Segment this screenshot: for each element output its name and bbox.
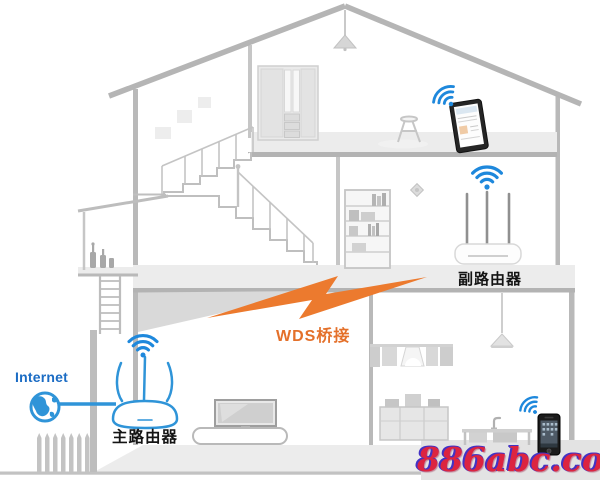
wds-bridge-label: WDS桥接 xyxy=(276,322,350,346)
secondary-router-wifi-icon xyxy=(473,167,502,190)
kitchen-sideboard xyxy=(380,394,448,440)
house-illustration xyxy=(0,0,600,481)
balcony xyxy=(78,196,168,270)
internet-label: Internet xyxy=(15,369,68,385)
kitchen-cabinets-upper xyxy=(370,344,453,367)
tv xyxy=(215,400,276,429)
fence xyxy=(37,433,90,472)
main-router-label: 主路由器 xyxy=(112,425,178,447)
second-floor-wall xyxy=(336,157,340,267)
wardrobe xyxy=(258,66,318,140)
wall-art-squares xyxy=(155,97,211,139)
kitchen-pendant-lamp xyxy=(491,293,513,348)
kitchen-wall xyxy=(369,293,373,445)
balcony-vases xyxy=(90,242,114,268)
secondary-router-label: 副路由器 xyxy=(458,268,522,289)
ladder xyxy=(100,276,120,334)
wall-clock xyxy=(411,184,424,197)
bookshelf xyxy=(345,190,390,268)
watermark-text: 886abc.com xyxy=(417,440,600,479)
tv-console xyxy=(193,428,287,444)
porch-post xyxy=(90,330,97,472)
right-wall-upper xyxy=(556,96,561,292)
diagram-canvas: Internet 主路由器 副路由器 WDS桥接 886abc.com xyxy=(0,0,600,481)
attic-gable-wall xyxy=(248,45,252,138)
faucet xyxy=(494,418,500,429)
secondary-router xyxy=(455,192,521,264)
internet-globe-icon xyxy=(31,393,59,421)
attic-pendant-lamp xyxy=(334,10,356,51)
main-router xyxy=(113,357,177,428)
